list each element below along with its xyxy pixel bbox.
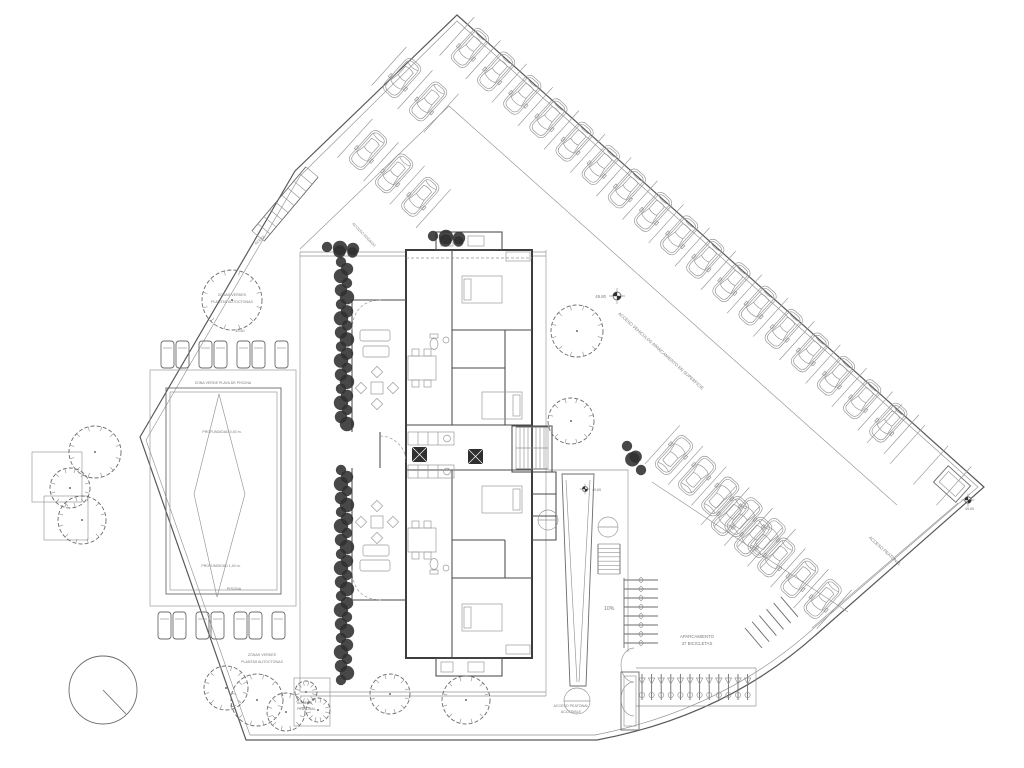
tree-branch bbox=[584, 434, 587, 437]
tree-branch bbox=[303, 681, 304, 685]
sunlounger-icon bbox=[252, 341, 265, 368]
hedge-icon bbox=[322, 242, 332, 252]
tree-branch bbox=[56, 474, 59, 477]
tree-branch bbox=[315, 717, 316, 721]
vehicle-access-label: ACCESO VEHICULOS APARCAMIENTO EN SUPERFI… bbox=[617, 311, 705, 391]
tree-branch bbox=[211, 318, 214, 321]
tree-branch bbox=[76, 497, 77, 501]
benchmark-icon bbox=[585, 489, 588, 492]
tree-branch bbox=[485, 705, 489, 706]
tree-branch bbox=[385, 675, 386, 679]
tree-branch bbox=[401, 705, 404, 708]
tree-branch bbox=[110, 434, 113, 437]
spot-elevation-building: 49.65 bbox=[592, 488, 601, 492]
parking-bay-divider bbox=[518, 87, 553, 126]
tree-branch bbox=[263, 721, 264, 725]
parking-bay-divider bbox=[492, 64, 527, 103]
parking-bay-divider bbox=[832, 368, 867, 407]
hedge-icon bbox=[336, 675, 346, 685]
tree-branch bbox=[584, 405, 587, 408]
tree-branch bbox=[559, 313, 562, 316]
car-icon bbox=[552, 119, 597, 165]
tree-branch bbox=[592, 346, 595, 349]
sunlounger-icon bbox=[214, 341, 227, 368]
vehicle-ramp bbox=[538, 474, 618, 714]
tree-branch bbox=[394, 709, 395, 713]
parking-bay-divider bbox=[701, 486, 736, 525]
accessible-access-label-2: ACCESIBLE bbox=[561, 710, 582, 714]
tree-branch bbox=[570, 306, 571, 310]
tree-branch bbox=[394, 675, 395, 679]
car-icon bbox=[675, 453, 720, 499]
tree-branch bbox=[220, 705, 221, 709]
car-icon bbox=[604, 165, 649, 211]
tree-branch bbox=[88, 427, 89, 431]
stair-tread bbox=[300, 174, 312, 184]
exterior-stair bbox=[252, 167, 318, 241]
benchmark-icon bbox=[965, 497, 968, 500]
tree-center bbox=[81, 519, 83, 521]
tree-branch bbox=[278, 706, 282, 707]
bike-icon bbox=[648, 674, 654, 700]
parking-bays-empty bbox=[867, 404, 971, 505]
stair-tread bbox=[306, 167, 318, 177]
parking-lot-top-left bbox=[338, 47, 459, 228]
pool-depth-deep-label: PROFUNDIDAD 1,40 m. bbox=[201, 564, 240, 568]
green-zone-top-label-1: ZONAS VERDES bbox=[218, 293, 247, 297]
bike-icon bbox=[744, 674, 750, 700]
tree-branch bbox=[250, 721, 251, 725]
hedge-icon bbox=[625, 452, 639, 466]
tree-branch bbox=[81, 499, 84, 502]
green-zone-bottom-label-2: PLANTAS AUTOCTONAS bbox=[241, 660, 283, 664]
tree-center bbox=[94, 451, 96, 453]
tree-branch bbox=[272, 682, 275, 685]
tree-center bbox=[576, 330, 578, 332]
bike-rack-comb bbox=[624, 577, 658, 648]
tree-branch bbox=[480, 714, 483, 717]
tree-branch bbox=[552, 337, 556, 338]
tree-branch bbox=[371, 689, 375, 690]
bike-icon bbox=[706, 674, 712, 700]
parking-bay-divider bbox=[440, 17, 475, 56]
tree-branch bbox=[273, 722, 276, 725]
tree-branch bbox=[376, 705, 379, 708]
parking-bay-divider bbox=[398, 70, 433, 109]
tree-branch bbox=[85, 483, 89, 484]
tree-branch bbox=[549, 415, 553, 416]
sunlounger-icon bbox=[234, 612, 247, 639]
stair-tread bbox=[270, 210, 282, 220]
tree-branch bbox=[583, 352, 584, 356]
stair-side bbox=[252, 167, 306, 231]
tree-branch bbox=[65, 469, 66, 473]
sunlounger-icon bbox=[211, 612, 224, 639]
tree-branch bbox=[449, 714, 452, 717]
tree-branch bbox=[323, 715, 326, 718]
tree-center bbox=[389, 693, 391, 695]
tree-branch bbox=[576, 399, 577, 403]
tree-branch bbox=[385, 709, 386, 713]
parking-bay-divider bbox=[806, 345, 841, 384]
sunlounger-icon bbox=[161, 341, 174, 368]
tree-center bbox=[305, 691, 307, 693]
tree-branch bbox=[323, 701, 326, 704]
pool-area bbox=[150, 370, 296, 606]
entrance-door-arc bbox=[380, 436, 406, 462]
tree-branch bbox=[281, 726, 282, 730]
tree-branch bbox=[203, 292, 207, 293]
car-icon bbox=[398, 174, 443, 220]
tree-branch bbox=[315, 698, 316, 702]
tree-branch bbox=[224, 325, 225, 329]
parking-bay-divider bbox=[867, 404, 902, 443]
tree-branch bbox=[74, 503, 75, 507]
parking-bay-divider bbox=[753, 298, 788, 337]
tree-branch bbox=[555, 434, 558, 437]
green-zone-bottom-label-1: ZONAS VERDES bbox=[248, 653, 277, 657]
tree-branch bbox=[371, 698, 375, 699]
tree-branch bbox=[77, 434, 80, 437]
bike-icon bbox=[668, 674, 674, 700]
parking-bay-divider bbox=[570, 134, 605, 173]
tree-branch bbox=[565, 399, 566, 403]
tree-branch bbox=[211, 279, 214, 282]
tree-branch bbox=[85, 492, 89, 493]
tree-branch bbox=[238, 672, 241, 675]
tree-center bbox=[285, 711, 287, 713]
sunlounger-icon bbox=[199, 341, 212, 368]
tree-center bbox=[225, 687, 227, 689]
tree-branch bbox=[59, 514, 63, 515]
car-icon bbox=[346, 127, 391, 173]
tree-branch bbox=[312, 689, 316, 690]
tree-branch bbox=[559, 346, 562, 349]
hedge-icon bbox=[636, 465, 646, 475]
hedge-icon bbox=[340, 417, 354, 431]
car-icon bbox=[578, 142, 623, 188]
balcony-bottom bbox=[436, 658, 502, 676]
tree-branch bbox=[59, 525, 63, 526]
benchmark-icon bbox=[968, 500, 971, 503]
tree-branch bbox=[272, 715, 275, 718]
bike-icon bbox=[716, 674, 722, 700]
parking-bay-divider bbox=[727, 275, 762, 314]
bike-parking-diagonal bbox=[745, 597, 798, 648]
stair-tread bbox=[294, 181, 306, 191]
tree-branch bbox=[443, 694, 447, 695]
parking-bay-divider bbox=[596, 157, 631, 196]
car-icon bbox=[380, 55, 425, 101]
tree-branch bbox=[300, 716, 304, 717]
sunloungers-top bbox=[161, 341, 288, 368]
pool-name-label: PISCINA bbox=[227, 587, 242, 591]
car-icon bbox=[631, 189, 676, 235]
tree-branch bbox=[583, 306, 584, 310]
planter-squares-left bbox=[32, 452, 88, 540]
bike-icon bbox=[696, 674, 702, 700]
sunlounger-icon bbox=[158, 612, 171, 639]
tree-branch bbox=[101, 525, 105, 526]
tree-branch bbox=[312, 694, 316, 695]
tree-center bbox=[69, 487, 71, 489]
car-icon bbox=[406, 78, 451, 124]
tree-branch bbox=[471, 677, 472, 681]
car-icon bbox=[761, 306, 806, 352]
tree-branch bbox=[405, 698, 409, 699]
hedge-icon bbox=[428, 231, 438, 241]
tree-branch bbox=[76, 539, 77, 543]
tree-branch bbox=[101, 427, 102, 431]
parking-bay-divider bbox=[623, 181, 658, 220]
car-icon bbox=[500, 72, 545, 118]
tree-branch bbox=[210, 700, 213, 703]
car-icon bbox=[448, 25, 493, 71]
tree-branch bbox=[460, 677, 461, 681]
tree-branch bbox=[250, 318, 253, 321]
pool-deck-label: ZONA VERDE PLAYA DE PISCINA bbox=[195, 381, 252, 385]
bike-icon bbox=[639, 674, 645, 700]
tree-branch bbox=[239, 715, 242, 718]
tree-branch bbox=[310, 715, 313, 718]
sunlounger-icon bbox=[272, 612, 285, 639]
car-icon bbox=[474, 48, 519, 94]
parking-bay-divider bbox=[779, 321, 814, 360]
tree-branch bbox=[589, 415, 593, 416]
tree-branch bbox=[273, 699, 276, 702]
parking-bay-divider bbox=[701, 251, 736, 290]
tree-branch bbox=[110, 467, 113, 470]
parking-bay-divider bbox=[390, 166, 425, 205]
tree-branch bbox=[116, 458, 120, 459]
tree-branch bbox=[471, 719, 472, 723]
tree-branch bbox=[257, 307, 261, 308]
benchmark-icon bbox=[613, 292, 617, 296]
tree-branch bbox=[376, 680, 379, 683]
tree-branch bbox=[401, 680, 404, 683]
car-icon bbox=[526, 95, 571, 141]
bike-zone-cabinet bbox=[621, 672, 639, 730]
pedestrian-access-diagonal-label: ACCESO PEATONAL bbox=[868, 535, 903, 567]
tree-branch bbox=[243, 682, 247, 683]
pedestrian-access-small-label-1: ACCESO bbox=[297, 701, 312, 705]
tree-branch bbox=[239, 271, 240, 275]
hedge-icon bbox=[439, 230, 453, 244]
parking-rows-middle bbox=[645, 425, 852, 628]
bike-icon bbox=[735, 674, 741, 700]
car-icon bbox=[777, 555, 822, 601]
tree-branch bbox=[205, 693, 209, 694]
tree-branch bbox=[257, 292, 261, 293]
tree-branch bbox=[101, 473, 102, 477]
bike-icon bbox=[658, 674, 664, 700]
ramp-slope-label: 10% bbox=[604, 606, 615, 612]
tree-branch bbox=[51, 492, 55, 493]
building bbox=[352, 232, 556, 676]
tree-center bbox=[231, 299, 233, 301]
tree-branch bbox=[555, 405, 558, 408]
stair-tread bbox=[276, 202, 288, 212]
tree-branch bbox=[96, 534, 99, 537]
tree-branch bbox=[250, 675, 251, 679]
tree-branch bbox=[449, 683, 452, 686]
tree-branch bbox=[268, 707, 272, 708]
hedge-icon bbox=[333, 241, 347, 255]
hedge-icon bbox=[347, 243, 359, 255]
tree-branch bbox=[88, 473, 89, 477]
car-icon bbox=[709, 259, 754, 305]
tree-branch bbox=[325, 707, 329, 708]
tree-branch bbox=[405, 689, 409, 690]
accessible-access-label-1: ACCESO PEATONAL bbox=[553, 704, 588, 708]
car-icon bbox=[657, 212, 702, 258]
tree-branch bbox=[443, 705, 447, 706]
tree-branch bbox=[295, 694, 299, 695]
tree-center bbox=[317, 709, 319, 711]
sunlounger-icon bbox=[237, 341, 250, 368]
tree-branch bbox=[250, 279, 253, 282]
bike-icon bbox=[677, 674, 683, 700]
tree-branch bbox=[325, 712, 329, 713]
utility-shed bbox=[933, 466, 970, 502]
tree-branch bbox=[116, 445, 120, 446]
tree-branch bbox=[243, 692, 247, 693]
tree-branch bbox=[268, 716, 272, 717]
tree-branch bbox=[576, 439, 577, 443]
parking-bay-divider bbox=[858, 392, 893, 431]
tree-branch bbox=[598, 337, 602, 338]
spot-elevation-center: 49.80 bbox=[595, 294, 606, 299]
parking-bay-divider bbox=[890, 425, 925, 464]
tree-branch bbox=[308, 681, 309, 685]
tree-branch bbox=[485, 694, 489, 695]
tree-branch bbox=[239, 682, 242, 685]
tree-branch bbox=[480, 683, 483, 686]
tree-branch bbox=[101, 514, 105, 515]
tree-branch bbox=[460, 719, 461, 723]
site-boundary bbox=[140, 15, 984, 740]
tree-branch bbox=[51, 483, 55, 484]
benchmark-icon bbox=[617, 296, 621, 300]
parking-bay-divider bbox=[913, 446, 948, 485]
sunlounger-icon bbox=[249, 612, 262, 639]
tree-branch bbox=[224, 271, 225, 275]
bike-parking-label-1: APARCAMIENTO bbox=[680, 634, 715, 639]
tree-center bbox=[570, 420, 572, 422]
tree-branch bbox=[552, 324, 556, 325]
parking-bay-divider bbox=[416, 189, 451, 228]
parking-bay-divider bbox=[424, 94, 459, 133]
tree-branch bbox=[320, 698, 321, 702]
hedge-icon bbox=[622, 441, 632, 451]
bike-parking-label-2: 37 BICICLETAS bbox=[682, 641, 713, 646]
bike-icon bbox=[687, 674, 693, 700]
tree-branch bbox=[296, 722, 299, 725]
tree-branch bbox=[230, 667, 231, 671]
sunloungers-bottom bbox=[158, 612, 285, 639]
site-plan-page: ACERA ACCESO RODADO ACCESO VEHICULOS APA… bbox=[0, 0, 1024, 768]
tree-branch bbox=[295, 689, 299, 690]
tree-branch bbox=[592, 313, 595, 316]
tree-branch bbox=[70, 445, 74, 446]
parking-bay-divider bbox=[544, 111, 579, 150]
tree-branch bbox=[589, 426, 593, 427]
sunlounger-icon bbox=[275, 341, 288, 368]
tree-branch bbox=[290, 694, 291, 698]
sunlounger-icon bbox=[173, 612, 186, 639]
tree-branch bbox=[70, 458, 74, 459]
tree-center bbox=[256, 699, 258, 701]
parking-bay-divider bbox=[466, 40, 501, 79]
tree-branch bbox=[96, 503, 99, 506]
car-icon bbox=[652, 432, 697, 478]
tree-branch bbox=[74, 469, 75, 473]
tree-branch bbox=[570, 352, 571, 356]
benchmark-icon bbox=[582, 486, 585, 489]
tree-branch bbox=[65, 534, 68, 537]
pool-depth-shallow-label: PROFUNDIDAD 0,40 m. bbox=[202, 430, 241, 434]
parking-bay-divider bbox=[364, 142, 399, 181]
tree-branch bbox=[320, 717, 321, 721]
spot-elevation-top-left: 49.80 bbox=[236, 329, 245, 333]
tree-center bbox=[465, 699, 467, 701]
tree-branch bbox=[306, 712, 310, 713]
tree-branch bbox=[263, 675, 264, 679]
car-icon bbox=[683, 236, 728, 282]
parking-bay-divider bbox=[884, 415, 919, 454]
tree-branch bbox=[565, 439, 566, 443]
tree-branch bbox=[210, 672, 213, 675]
tree-branch bbox=[311, 684, 314, 687]
tree-branch bbox=[598, 324, 602, 325]
bike-parking-row bbox=[639, 674, 751, 700]
tree-branch bbox=[203, 307, 207, 308]
site-plan-drawing: ACERA ACCESO RODADO ACCESO VEHICULOS APA… bbox=[0, 0, 1024, 768]
tree-branch bbox=[205, 682, 209, 683]
roundabout-circle bbox=[69, 656, 137, 724]
ramp-stair bbox=[598, 544, 620, 574]
hedge-icon bbox=[453, 232, 465, 244]
tree-branch bbox=[290, 726, 291, 730]
parking-bay-divider bbox=[675, 228, 710, 267]
car-icon bbox=[735, 282, 780, 328]
parking-bay-divider bbox=[649, 204, 684, 243]
spot-elevation-right: 49.80 bbox=[965, 507, 974, 511]
